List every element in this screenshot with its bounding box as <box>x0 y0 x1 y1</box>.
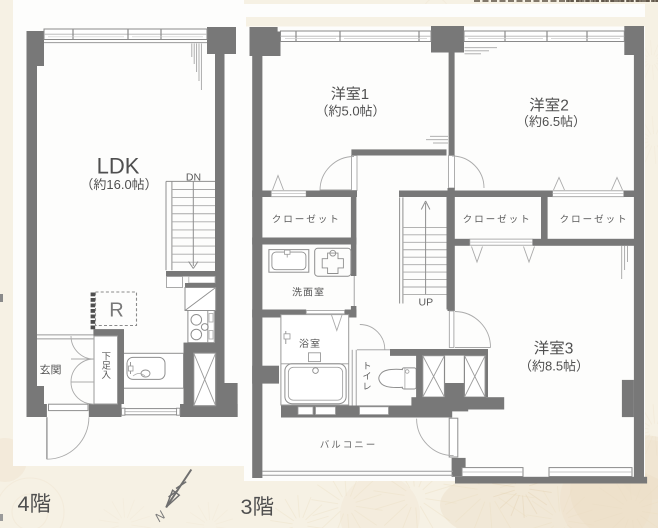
svg-text:16.0: 16.0 <box>106 177 131 192</box>
svg-text:6.5: 6.5 <box>542 114 560 129</box>
svg-text:5.0: 5.0 <box>342 104 360 119</box>
svg-text:3: 3 <box>565 341 574 358</box>
svg-text:2: 2 <box>560 98 569 115</box>
svg-text:1: 1 <box>361 86 369 103</box>
svg-text:LDK: LDK <box>97 154 140 179</box>
svg-text:8.5: 8.5 <box>545 359 563 374</box>
svg-text:R: R <box>109 300 123 322</box>
svg-text:3: 3 <box>241 495 253 519</box>
svg-text:4: 4 <box>18 492 30 516</box>
svg-text:DN: DN <box>186 172 201 184</box>
svg-text:UP: UP <box>419 297 434 309</box>
